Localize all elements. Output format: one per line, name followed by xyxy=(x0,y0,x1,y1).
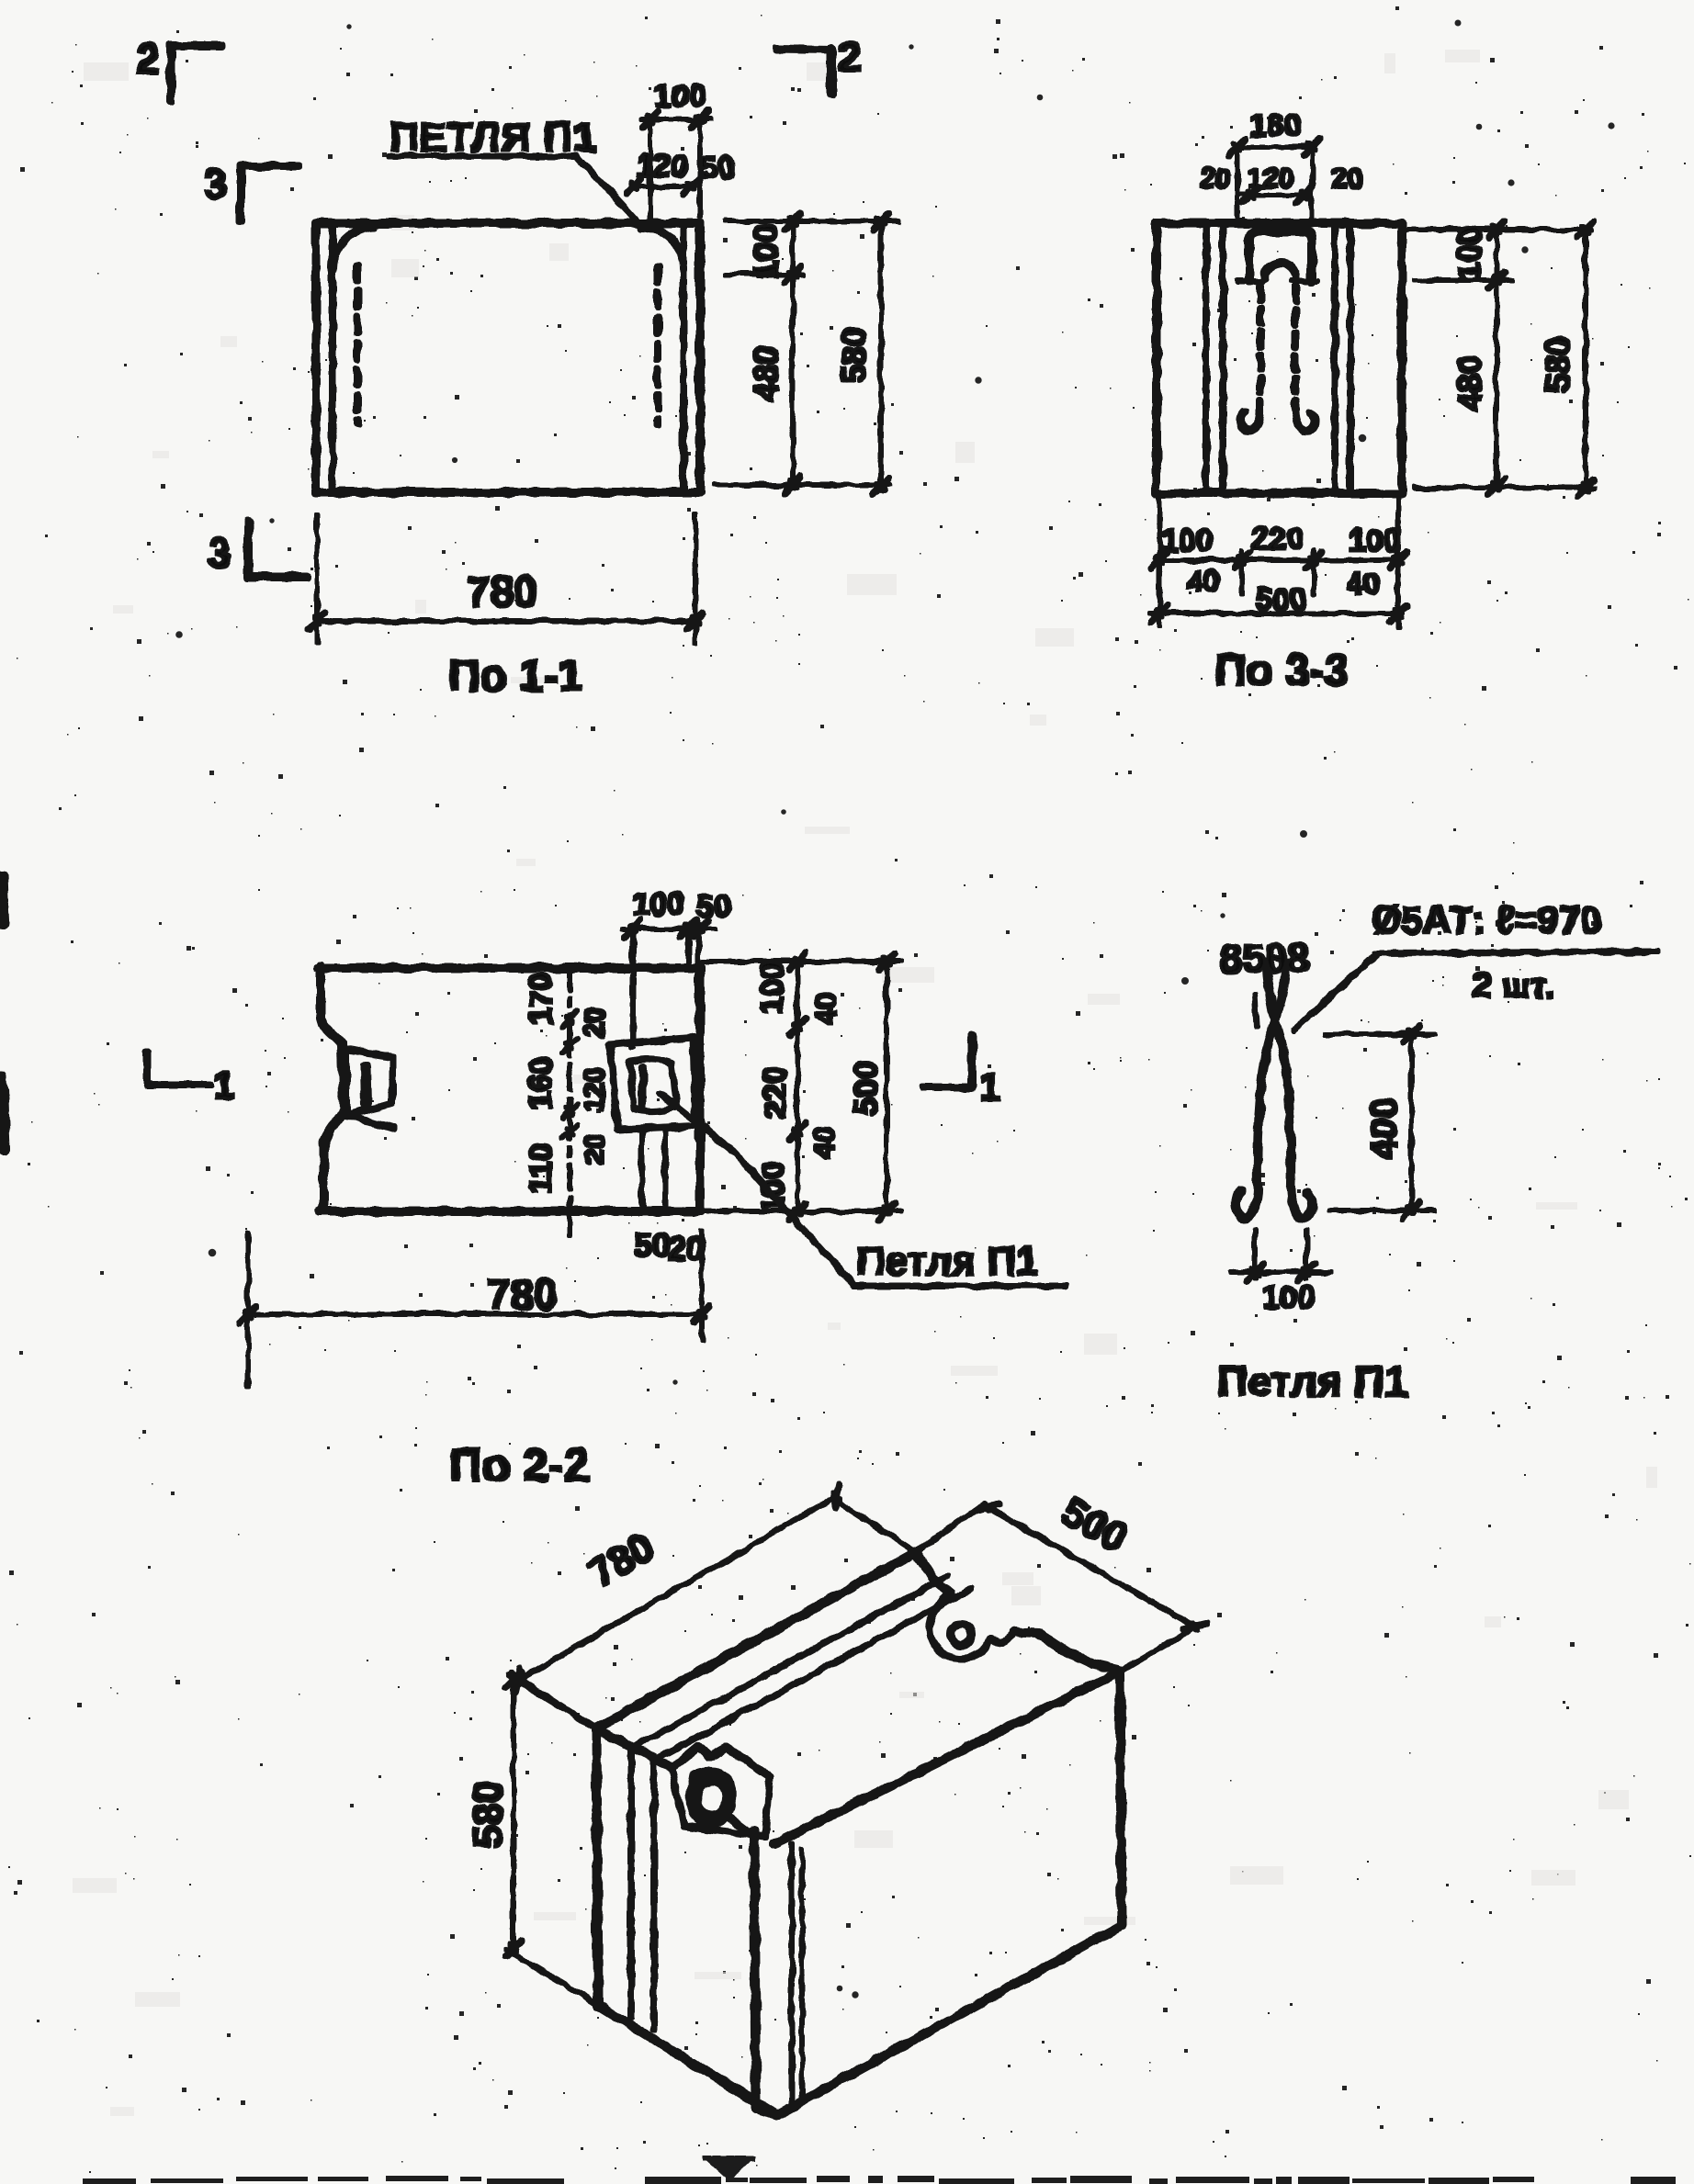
svg-text:По 2-2: По 2-2 xyxy=(449,1439,590,1491)
svg-text:40: 40 xyxy=(1347,567,1380,600)
svg-text:50: 50 xyxy=(696,889,731,924)
svg-text:2: 2 xyxy=(838,33,862,81)
svg-text:220: 220 xyxy=(1251,522,1304,557)
svg-text:110: 110 xyxy=(524,1143,559,1194)
svg-text:160: 160 xyxy=(1249,108,1302,143)
svg-text:100: 100 xyxy=(1161,523,1214,558)
svg-text:20: 20 xyxy=(668,1230,705,1267)
svg-text:480: 480 xyxy=(747,346,785,401)
svg-text:100: 100 xyxy=(1349,523,1401,558)
svg-text:40: 40 xyxy=(809,992,842,1025)
svg-text:По 1-1: По 1-1 xyxy=(448,652,583,701)
svg-text:400: 400 xyxy=(1364,1098,1405,1159)
svg-text:780: 780 xyxy=(582,1525,662,1597)
svg-text:40: 40 xyxy=(807,1126,841,1159)
svg-text:100: 100 xyxy=(654,79,706,114)
svg-text:3: 3 xyxy=(204,160,228,208)
svg-text:780: 780 xyxy=(467,568,537,615)
svg-text:170: 170 xyxy=(524,973,559,1025)
svg-text:20: 20 xyxy=(580,1134,610,1165)
svg-text:Петля П1: Петля П1 xyxy=(856,1239,1038,1284)
svg-text:580: 580 xyxy=(835,328,873,383)
svg-text:580: 580 xyxy=(466,1781,511,1848)
svg-text:120: 120 xyxy=(1248,163,1293,194)
svg-text:По 3-3: По 3-3 xyxy=(1214,647,1350,695)
svg-text:1: 1 xyxy=(213,1064,234,1107)
svg-text:120: 120 xyxy=(580,1067,610,1113)
svg-text:480: 480 xyxy=(1451,355,1488,411)
svg-text:500: 500 xyxy=(847,1061,885,1116)
svg-text:20: 20 xyxy=(1200,163,1230,194)
svg-text:780: 780 xyxy=(487,1270,558,1318)
svg-text:Петля П1: Петля П1 xyxy=(1217,1357,1407,1405)
svg-text:100: 100 xyxy=(747,224,785,279)
svg-text:2 шт.: 2 шт. xyxy=(1473,967,1554,1006)
svg-text:20: 20 xyxy=(580,1008,610,1038)
svg-text:20: 20 xyxy=(1332,163,1362,194)
svg-text:100: 100 xyxy=(1262,1280,1315,1315)
svg-text:50: 50 xyxy=(700,151,735,186)
svg-text:500: 500 xyxy=(1255,582,1307,617)
svg-text:1: 1 xyxy=(979,1065,1000,1109)
svg-text:50: 50 xyxy=(634,1226,671,1264)
svg-text:100: 100 xyxy=(632,887,684,922)
svg-text:160: 160 xyxy=(524,1057,559,1109)
svg-text:85θ8: 85θ8 xyxy=(1220,936,1309,981)
svg-text:Ø5АТ: ℓ=970: Ø5АТ: ℓ=970 xyxy=(1372,898,1601,941)
svg-text:580: 580 xyxy=(1539,337,1576,392)
svg-text:120: 120 xyxy=(636,149,688,184)
svg-text:2: 2 xyxy=(136,35,160,83)
svg-text:3: 3 xyxy=(208,529,232,577)
svg-text:220: 220 xyxy=(758,1066,793,1119)
svg-text:40: 40 xyxy=(1187,565,1220,598)
svg-text:100: 100 xyxy=(755,962,790,1014)
svg-text:ПЕТЛЯ П1: ПЕТЛЯ П1 xyxy=(390,115,597,160)
svg-text:100: 100 xyxy=(1451,226,1488,281)
